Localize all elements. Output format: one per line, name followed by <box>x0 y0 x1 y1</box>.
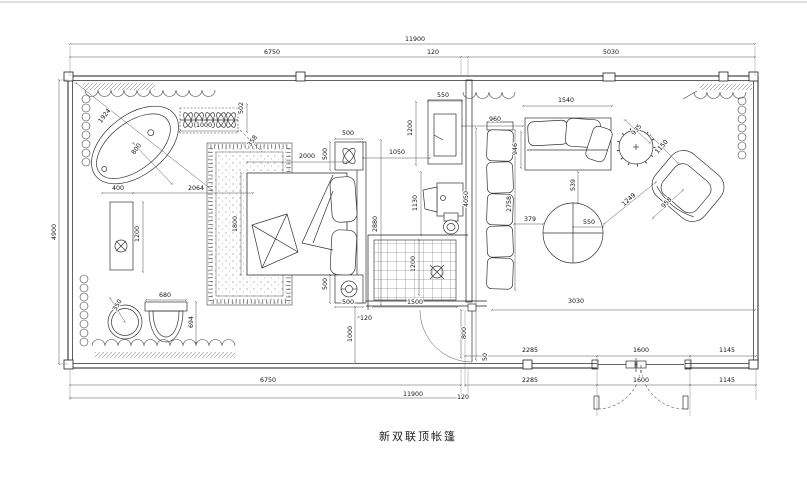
dim-label: 1200 <box>134 226 141 242</box>
dim-label: 694 <box>188 316 195 328</box>
dim-label: 11900 <box>403 391 423 398</box>
bed <box>247 173 358 276</box>
dim-label: 500 <box>322 278 329 290</box>
dim-label: 502 <box>238 102 245 114</box>
plant-shelf <box>180 108 238 133</box>
dim-label: 1600 <box>633 377 649 384</box>
dim-label: 500 <box>322 148 329 160</box>
dim-label: 1000 <box>347 326 354 342</box>
dim-label: 2000 <box>299 153 315 160</box>
left-wall-curtain <box>82 95 90 166</box>
coffee-table-round <box>543 203 603 263</box>
chaise-sofa <box>525 118 614 170</box>
right-wall-curtain <box>738 97 746 159</box>
dim-label: 1924 <box>97 108 112 125</box>
dim-label: 500 <box>342 130 354 137</box>
dim-label: 1145 <box>719 377 735 384</box>
dim-label: 1000 <box>196 122 212 129</box>
dim-label: 1540 <box>558 97 574 104</box>
dim-label: 500 <box>342 299 354 306</box>
dim-label: 550 <box>437 92 449 99</box>
drawing-title: 新双联顶帐篷 <box>379 429 457 443</box>
dim-label: 4050 <box>463 191 470 207</box>
dim-label: 2758 <box>506 196 513 212</box>
dim-label: 400 <box>112 185 124 192</box>
dim-label: 550 <box>583 219 595 226</box>
dim-label: 1200 <box>407 120 414 136</box>
dim-label: 3030 <box>568 298 584 305</box>
dim-label: 5030 <box>603 49 619 56</box>
dim-label: 946 <box>512 143 519 155</box>
dim-label: 6750 <box>264 49 280 56</box>
dim-label: 379 <box>524 216 536 223</box>
nightstand-top <box>335 142 363 170</box>
dim-label: 120 <box>427 49 439 56</box>
floorplan-drawing: 1190067501205030490019248001000502400206… <box>0 0 807 501</box>
dim-label: 1800 <box>232 216 239 232</box>
dim-label: 680 <box>159 292 171 299</box>
dim-label: 1130 <box>412 195 419 211</box>
bath-bench <box>110 202 133 270</box>
dim-label: 1249 <box>621 192 638 208</box>
wc <box>444 213 459 234</box>
dim-label: 11900 <box>405 36 425 43</box>
left-wall-curtain-lower <box>80 275 88 346</box>
floorplan-canvas: 1190067501205030490019248001000502400206… <box>0 0 807 501</box>
dim-label: 960 <box>489 116 501 123</box>
dim-label: 1200 <box>410 256 417 272</box>
dim-label: 4900 <box>51 224 58 240</box>
dim-label: 1050 <box>389 149 405 156</box>
dim-label: 120 <box>360 315 372 322</box>
dim-label: 1145 <box>719 347 735 354</box>
toilet <box>145 302 187 342</box>
dim-label: 1600 <box>633 347 649 354</box>
dim-label: 2285 <box>522 377 538 384</box>
dim-label: 2064 <box>188 185 204 192</box>
dim-label: 120 <box>457 394 469 401</box>
dim-label: 50 <box>482 353 489 361</box>
dim-label: 539 <box>570 179 577 191</box>
dim-label: 2880 <box>372 216 379 232</box>
dimension-labels: 1190067501205030490019248001000502400206… <box>51 36 735 401</box>
armchair <box>645 144 730 228</box>
dim-label: 800 <box>461 327 468 339</box>
vanity-sink <box>423 183 463 216</box>
dim-label: 2285 <box>522 347 538 354</box>
dim-label: 6750 <box>260 377 276 384</box>
dim-label: 1500 <box>407 299 423 306</box>
wardrobe-cabinet <box>428 100 462 164</box>
